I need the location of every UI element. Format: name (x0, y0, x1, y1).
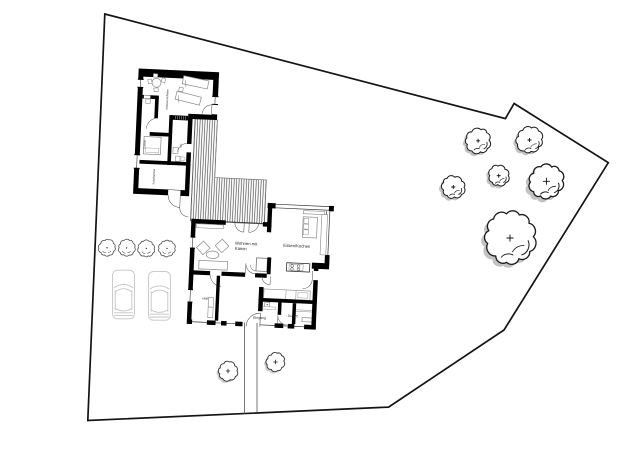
svg-text:Eingang: Eingang (253, 316, 266, 321)
svg-text:Kamin: Kamin (235, 246, 248, 252)
svg-text:Du/WC: Du/WC (288, 314, 299, 319)
svg-text:Du/Bad: Du/Bad (143, 139, 146, 148)
